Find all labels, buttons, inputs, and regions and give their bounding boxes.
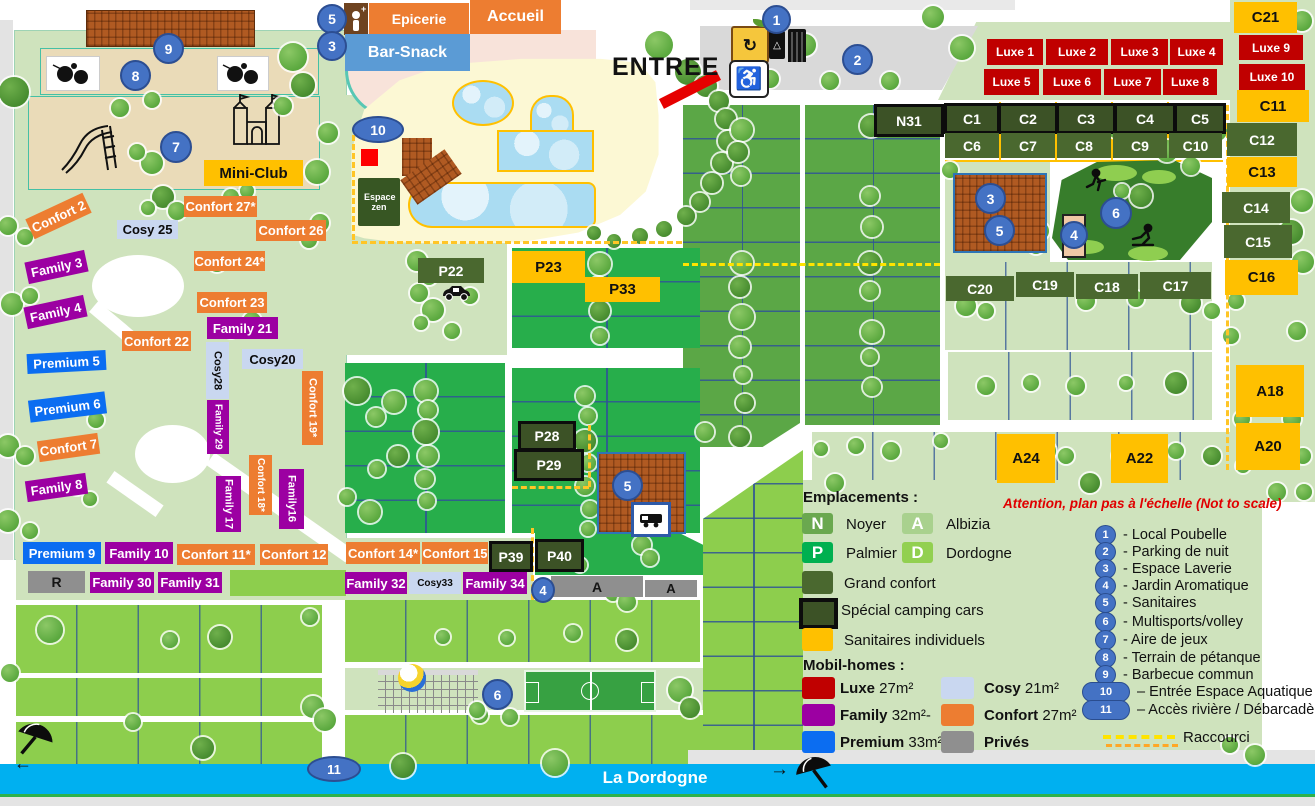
- trash-bin-icon: [788, 29, 806, 62]
- tree: [922, 6, 944, 28]
- legend-mobil-label: Cosy 21m²: [984, 680, 1059, 697]
- tree: [415, 380, 437, 402]
- mobilhome-label-confort-15[interactable]: Confort 15: [422, 542, 488, 564]
- map-badge-10[interactable]: 10: [352, 116, 404, 143]
- pitch-sign-a18[interactable]: A18: [1236, 365, 1304, 417]
- legend-swatch-N: N: [802, 513, 833, 534]
- tree: [125, 714, 141, 730]
- poi-label: - Espace Laverie: [1123, 561, 1232, 577]
- map-badge-5[interactable]: 5: [984, 215, 1015, 246]
- tree: [735, 367, 751, 383]
- legend-swatch-confort: [941, 704, 974, 726]
- tree: [709, 91, 729, 111]
- beach-umbrella-icon: →: [770, 748, 837, 792]
- pitch-sign-p29[interactable]: P29: [514, 449, 584, 481]
- map-badge-4[interactable]: 4: [531, 577, 555, 603]
- map-badge-7[interactable]: 7: [160, 131, 192, 163]
- pitch-sign-c4[interactable]: C4: [1114, 103, 1176, 134]
- mobilhome-label-cosy33[interactable]: Cosy33: [409, 572, 461, 594]
- mobilhome-label-cosy28[interactable]: Cosy28: [206, 342, 229, 399]
- tree: [83, 492, 97, 506]
- pitch-sign-c10[interactable]: C10: [1169, 133, 1222, 158]
- espace-zen-building[interactable]: Espace zen: [358, 178, 400, 226]
- pitch-sign-c21[interactable]: C21: [1234, 2, 1297, 33]
- pitch-sign-a20[interactable]: A20: [1236, 423, 1300, 470]
- tree: [1288, 322, 1306, 340]
- pitch-sign-c18[interactable]: C18: [1076, 274, 1138, 299]
- bottom-row-m1: [345, 600, 700, 662]
- map-badge-11[interactable]: 11: [307, 756, 361, 782]
- shortcut-path: [352, 241, 682, 244]
- tree: [814, 442, 828, 456]
- poi-item-5: 5- Sanitaires: [1095, 593, 1196, 613]
- poi-label: - Multisports/volley: [1123, 614, 1243, 630]
- tree: [0, 77, 29, 107]
- bottom-row-l3: [16, 722, 322, 764]
- mobilhome-label-family-10[interactable]: Family 10: [105, 542, 173, 564]
- bottom-row-l2: [16, 678, 322, 716]
- multisport-bush: [1128, 246, 1168, 261]
- tree: [419, 493, 435, 509]
- mobilhome-label-r[interactable]: R: [28, 571, 85, 593]
- pitch-sign-c15[interactable]: C15: [1224, 225, 1292, 258]
- bottom-gray-strip: [0, 797, 1315, 806]
- tree: [388, 446, 408, 466]
- tree: [730, 427, 750, 447]
- legend-swatch-camp: [799, 598, 838, 629]
- legend-swatch-cosy: [941, 677, 974, 699]
- tree: [314, 709, 336, 731]
- tree: [861, 321, 883, 343]
- poi-label: - Terrain de pétanque: [1123, 650, 1261, 666]
- volleyball-net: [378, 670, 478, 713]
- mobilhome-label-cosy-25[interactable]: Cosy 25: [117, 220, 178, 239]
- tree: [1228, 293, 1244, 309]
- mobilhome-label-family-32[interactable]: Family 32: [345, 572, 407, 594]
- mobilhome-label-cosy20[interactable]: Cosy20: [242, 349, 303, 369]
- tree: [1204, 303, 1220, 319]
- sport-figure-icon: [1082, 168, 1108, 198]
- pitch-sign-c12[interactable]: C12: [1227, 123, 1297, 156]
- pitch-sign-c6[interactable]: C6: [945, 133, 999, 158]
- pitch-sign-c1[interactable]: C1: [944, 103, 1000, 134]
- pitch-sign-c8[interactable]: C8: [1057, 133, 1111, 158]
- tree: [1130, 185, 1152, 207]
- goal-right: [641, 682, 655, 703]
- pitch-sign-c20[interactable]: C20: [946, 276, 1014, 301]
- scale-notice: Attention, plan pas à l'échelle (Not to …: [1003, 496, 1282, 511]
- tree: [414, 316, 428, 330]
- tree: [732, 167, 750, 185]
- tree: [950, 36, 974, 60]
- tree: [592, 328, 608, 344]
- poi-label: – Entrée Espace Aquatique: [1137, 684, 1313, 700]
- tree: [111, 99, 129, 117]
- tree: [861, 187, 879, 205]
- legend-swatch-D: D: [902, 542, 933, 563]
- pitch-sign-c14[interactable]: C14: [1222, 192, 1290, 223]
- pitch-sign-c19[interactable]: C19: [1016, 272, 1074, 297]
- legend-swatch-A: A: [902, 513, 933, 534]
- mobilhome-label-confort-19-[interactable]: Confort 19*: [302, 371, 323, 445]
- bar-snack-building[interactable]: Bar-Snack: [345, 34, 470, 71]
- legend-swatch-luxe: [802, 677, 835, 699]
- shower-building: +: [344, 3, 368, 35]
- pitch-sign-c17[interactable]: C17: [1140, 272, 1211, 299]
- tree: [383, 391, 405, 413]
- poi-badge-7: 7: [1095, 630, 1116, 650]
- pitch-sign-luxe-4[interactable]: Luxe 4: [1170, 39, 1223, 65]
- tree: [617, 630, 637, 650]
- pitch-sign-c2[interactable]: C2: [998, 103, 1058, 134]
- map-badge-3[interactable]: 3: [317, 31, 347, 61]
- tree: [1165, 372, 1187, 394]
- tree: [414, 420, 438, 444]
- mobilhome-label-confort-27-[interactable]: Confort 27*: [184, 196, 257, 217]
- tree: [863, 378, 881, 396]
- bar-snack-label: Bar-Snack: [368, 44, 447, 62]
- pitch-sign-c5[interactable]: C5: [1174, 103, 1226, 134]
- tree: [731, 119, 753, 141]
- shortcut-path: [352, 135, 355, 240]
- tree: [209, 626, 231, 648]
- pitch-sign-luxe-3[interactable]: Luxe 3: [1111, 39, 1168, 65]
- poi-badge-10: 10: [1082, 682, 1130, 702]
- map-badge-3[interactable]: 3: [975, 183, 1006, 214]
- espace-zen-label: Espace zen: [364, 192, 394, 212]
- pitch-sign-luxe-5[interactable]: Luxe 5: [984, 69, 1039, 95]
- tree: [1080, 473, 1100, 493]
- map-badge-6[interactable]: 6: [1100, 197, 1132, 229]
- tree: [1182, 157, 1200, 175]
- tree: [587, 226, 601, 240]
- tree: [881, 72, 899, 90]
- legend-mobil-label: Luxe 27m²: [840, 680, 913, 697]
- pitch-sign-n31[interactable]: N31: [874, 104, 944, 137]
- pitch-sign-p33[interactable]: P33: [585, 277, 660, 302]
- tree: [862, 349, 878, 365]
- multisport-bush: [1142, 170, 1176, 184]
- tree: [978, 303, 994, 319]
- map-badge-5[interactable]: 5: [612, 470, 643, 501]
- tree: [977, 377, 995, 395]
- pitch-sign-luxe-2[interactable]: Luxe 2: [1046, 39, 1108, 65]
- tree: [344, 378, 370, 404]
- tree: [274, 97, 292, 115]
- tree: [367, 408, 385, 426]
- tree: [862, 217, 882, 237]
- tree: [418, 446, 438, 466]
- shortcut-path: [683, 263, 940, 266]
- poi-label: - Barbecue commun: [1123, 667, 1254, 683]
- tree: [144, 92, 160, 108]
- tree: [1291, 190, 1313, 212]
- car-icon: [440, 283, 472, 303]
- legend-mobil-label: Privés: [984, 734, 1029, 751]
- tree: [291, 73, 315, 97]
- tree: [1168, 443, 1184, 459]
- tree: [642, 550, 658, 566]
- pitch-sign-c3[interactable]: C3: [1056, 103, 1116, 134]
- mobilhome-label-confort-26[interactable]: Confort 26: [256, 220, 326, 241]
- legend-extra-label: Sanitaires individuels: [844, 632, 985, 649]
- raccourci-label: Raccourci: [1183, 729, 1250, 746]
- pitch-sign-p40[interactable]: P40: [535, 539, 584, 572]
- pitch-sign-c9[interactable]: C9: [1113, 133, 1167, 158]
- red-marker: [361, 149, 378, 166]
- legend-type-label: Noyer: [846, 516, 886, 533]
- tree: [580, 408, 596, 424]
- epicerie-label: Epicerie: [392, 11, 446, 27]
- poi-label: - Parking de nuit: [1123, 544, 1229, 560]
- tree: [469, 702, 485, 718]
- map-badge-2[interactable]: 2: [842, 44, 873, 75]
- pitch-sign-a22[interactable]: A22: [1111, 434, 1168, 483]
- pitch-sign-luxe-6[interactable]: Luxe 6: [1043, 69, 1101, 95]
- tree: [436, 630, 450, 644]
- tree: [22, 523, 38, 539]
- bright-strip-3031: [230, 570, 346, 596]
- tree: [680, 698, 700, 718]
- mobilhome-label-family-29[interactable]: Family 29: [207, 400, 229, 454]
- tree: [1245, 745, 1265, 765]
- poi-item-10: 10– Entrée Espace Aquatique: [1082, 682, 1313, 702]
- legend-type-label: Dordogne: [946, 545, 1012, 562]
- tree: [590, 301, 610, 321]
- legend-mobil-label: Family 32m²-: [840, 707, 931, 724]
- volleyball-icon: [398, 664, 426, 692]
- legend-extra-label: Grand confort: [844, 575, 936, 592]
- tree: [730, 277, 750, 297]
- tree: [500, 631, 514, 645]
- poi-item-7: 7- Aire de jeux: [1095, 630, 1208, 650]
- tree: [22, 288, 38, 304]
- tree: [1, 293, 23, 315]
- tree: [416, 470, 434, 488]
- pitch-sign-c16[interactable]: C16: [1225, 260, 1298, 295]
- tree: [339, 489, 355, 505]
- mobilhome-label-confort-18-[interactable]: Confort 18*: [249, 455, 272, 515]
- legend-mobil-label: Confort 27m²: [984, 707, 1077, 724]
- tree: [1119, 376, 1133, 390]
- slide-icon: [58, 118, 126, 176]
- poi-item-6: 6- Multisports/volley: [1095, 612, 1243, 632]
- poi-label: - Sanitaires: [1123, 595, 1196, 611]
- tree: [318, 123, 338, 143]
- mobilhome-label-family-31[interactable]: Family 31: [158, 572, 222, 593]
- mobilhome-label-family-17[interactable]: Family 17: [216, 476, 241, 532]
- tree: [1203, 447, 1221, 465]
- mobilhome-label-family16[interactable]: Family16: [279, 469, 304, 529]
- pool-round: [452, 80, 514, 126]
- tree: [656, 221, 672, 237]
- legend-type-label: Palmier: [846, 545, 897, 562]
- river-label: La Dordogne: [560, 768, 750, 788]
- mobilhome-label-family-21[interactable]: Family 21: [207, 317, 278, 339]
- tree: [129, 144, 145, 160]
- tree: [691, 193, 709, 211]
- mobilhome-label-confort-11-[interactable]: Confort 11*: [177, 544, 255, 565]
- roundabout-2: [135, 425, 210, 483]
- tree: [16, 447, 34, 465]
- epicerie-building[interactable]: Epicerie: [369, 3, 469, 34]
- tree: [1058, 448, 1074, 464]
- pitch-sign-luxe-7[interactable]: Luxe 7: [1104, 69, 1161, 95]
- entree-label: ENTREE: [612, 53, 722, 81]
- wheelchair-sign: ♿: [729, 60, 769, 98]
- tree: [696, 423, 714, 441]
- mobilhome-label-premium-9[interactable]: Premium 9: [23, 542, 101, 564]
- mobilhome-label-premium-5[interactable]: Premium 5: [27, 350, 107, 374]
- petanque-icon: [217, 56, 269, 91]
- raccourci-dash-orange: [1106, 744, 1178, 747]
- tree: [730, 337, 750, 357]
- legend-swatch-family: [802, 704, 835, 726]
- tree: [934, 434, 948, 448]
- legend-emplacements-title: Emplacements :: [803, 489, 918, 506]
- mobilhome-label-a[interactable]: A: [551, 576, 643, 597]
- mobilhome-label-confort-23[interactable]: Confort 23: [197, 292, 267, 313]
- poi-badge-6: 6: [1095, 612, 1116, 632]
- legend-mobil-title: Mobil-homes :: [803, 657, 905, 674]
- legend-swatch-dark: [802, 571, 833, 594]
- recycle-bin-icon: △: [769, 31, 785, 59]
- svg-text:+: +: [361, 4, 366, 14]
- tree: [702, 173, 722, 193]
- tree: [589, 253, 611, 275]
- tree: [419, 401, 437, 419]
- top-gray-band: [690, 0, 1015, 10]
- tree: [582, 501, 598, 517]
- map-badge-8[interactable]: 8: [120, 60, 151, 91]
- legend-mobil-label: Premium 33m²: [840, 734, 943, 751]
- tree: [192, 737, 214, 759]
- tree: [1067, 377, 1085, 395]
- accueil-building[interactable]: Accueil: [470, 0, 561, 34]
- tree: [861, 282, 879, 300]
- pitch-sign-c13[interactable]: C13: [1227, 157, 1297, 187]
- pitch-sign-a24[interactable]: A24: [997, 434, 1055, 483]
- poi-item-11: 11– Accès rivière / Débarcadère: [1082, 700, 1315, 720]
- mobilhome-label-family-34[interactable]: Family 34: [463, 572, 527, 594]
- tree: [730, 305, 754, 329]
- pitch-sign-p22[interactable]: P22: [418, 258, 484, 283]
- mobilhome-label-confort-14-[interactable]: Confort 14*: [346, 542, 420, 564]
- poi-label: - Aire de jeux: [1123, 632, 1208, 648]
- legend-extra-label: Spécial camping cars: [841, 602, 984, 619]
- sport-figure-icon: [1128, 222, 1158, 248]
- soccer-field: [524, 670, 656, 712]
- poi-label: – Accès rivière / Débarcadère: [1137, 702, 1315, 718]
- campground-map: + Epicerie Accueil Bar-Snack Espace zen …: [0, 0, 1315, 806]
- tree: [565, 625, 581, 641]
- pitch-sign-c7[interactable]: C7: [1001, 133, 1055, 158]
- tree: [410, 284, 428, 302]
- tree: [581, 522, 595, 536]
- tree: [502, 709, 518, 725]
- pitch-sign-luxe-9[interactable]: Luxe 9: [1239, 35, 1303, 60]
- mobilhome-label-confort-12[interactable]: Confort 12: [260, 544, 328, 565]
- poi-badge-11: 11: [1082, 700, 1130, 720]
- tree: [821, 72, 839, 90]
- map-badge-5[interactable]: 5: [317, 4, 347, 34]
- camping-car-sign: [631, 502, 671, 537]
- legend-type-label: Albizia: [946, 516, 990, 533]
- mobilhome-label-a[interactable]: A: [645, 580, 697, 597]
- pitch-sign-luxe-8[interactable]: Luxe 8: [1163, 69, 1217, 95]
- pitch-sign-p28[interactable]: P28: [518, 421, 576, 451]
- tree: [305, 160, 329, 184]
- right-diag-zone: [703, 450, 803, 763]
- accueil-label: Accueil: [487, 8, 544, 26]
- mobilhome-label-confort-22[interactable]: Confort 22: [122, 331, 191, 351]
- shortcut-path: [588, 425, 591, 487]
- mobilhome-label-family-30[interactable]: Family 30: [90, 572, 154, 593]
- tree: [279, 43, 307, 71]
- tree: [677, 207, 695, 225]
- beach-umbrella-icon: ←: [14, 715, 58, 774]
- legend-swatch-premium: [802, 731, 835, 753]
- legend-swatch-amber: [802, 628, 833, 651]
- pitch-sign-p39[interactable]: P39: [489, 541, 533, 572]
- tree: [1, 664, 19, 682]
- legend-swatch-P: P: [802, 542, 833, 563]
- petanque-icon: [46, 56, 100, 91]
- tree: [1296, 484, 1312, 500]
- map-badge-4[interactable]: 4: [1060, 221, 1088, 249]
- map-badge-1[interactable]: 1: [762, 5, 791, 34]
- tree: [37, 617, 63, 643]
- tree: [141, 152, 163, 174]
- goal-left: [525, 682, 539, 703]
- tree: [736, 394, 754, 412]
- tree: [391, 754, 415, 778]
- tree: [728, 142, 748, 162]
- pitch-sign-mini-club[interactable]: Mini-Club: [204, 160, 303, 186]
- map-badge-9[interactable]: 9: [153, 33, 184, 64]
- tree: [1115, 184, 1129, 198]
- tree: [882, 442, 900, 460]
- pitch-sign-luxe-1[interactable]: Luxe 1: [987, 39, 1043, 65]
- pitch-sign-c11[interactable]: C11: [1237, 90, 1309, 122]
- pitch-sign-luxe-10[interactable]: Luxe 10: [1239, 64, 1305, 90]
- tree: [848, 438, 864, 454]
- poi-label: - Jardin Aromatique: [1123, 578, 1249, 594]
- pitch-sign-p23[interactable]: P23: [512, 251, 585, 283]
- tree: [576, 387, 594, 405]
- map-badge-6[interactable]: 6: [482, 679, 513, 710]
- tree: [369, 461, 385, 477]
- tree: [141, 201, 155, 215]
- raccourci-dash-yellow: [1103, 735, 1175, 739]
- poi-label: - Local Poubelle: [1123, 527, 1227, 543]
- shortcut-path: [512, 486, 589, 489]
- poi-badge-5: 5: [1095, 593, 1116, 613]
- tree: [444, 323, 460, 339]
- mobilhome-label-confort-24-[interactable]: Confort 24*: [194, 251, 265, 271]
- pool-main: [497, 130, 594, 172]
- tree: [162, 632, 178, 648]
- tree: [359, 501, 381, 523]
- legend-swatch-privés: [941, 731, 974, 753]
- tree: [302, 609, 318, 625]
- tree: [1023, 375, 1039, 391]
